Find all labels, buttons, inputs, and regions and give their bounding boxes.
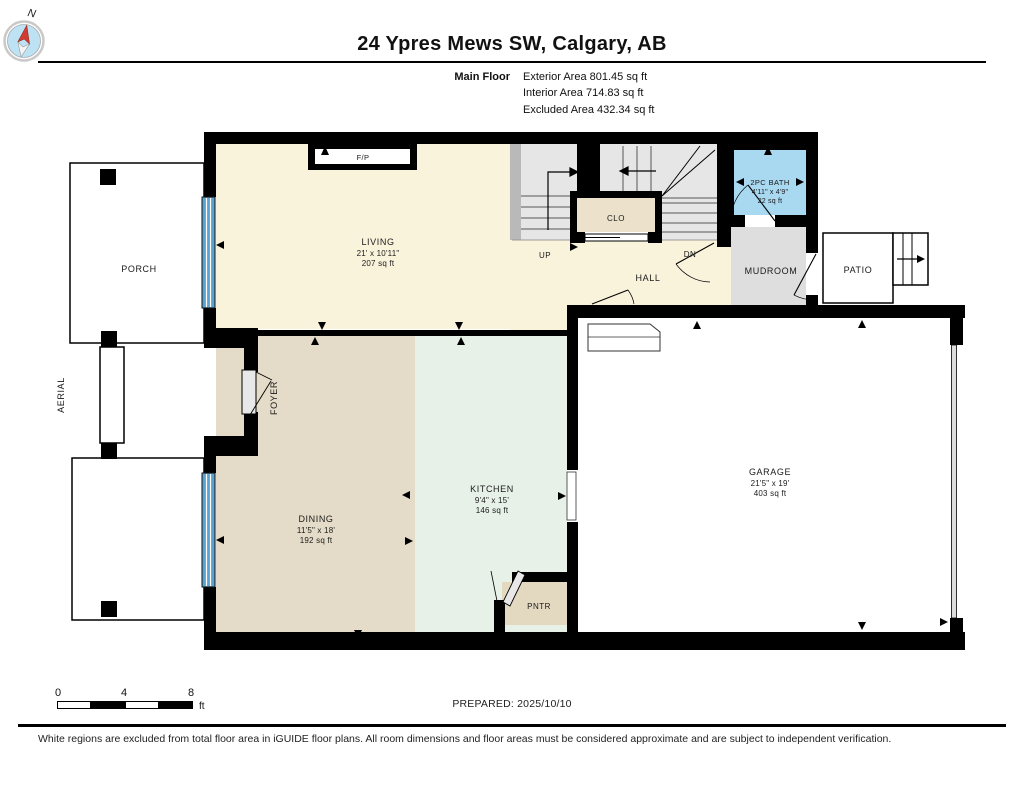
bath-label: 2PC BATH	[750, 178, 789, 187]
prepared-date: PREPARED: 2025/10/10	[0, 698, 1024, 710]
bath-sqft: 22 sq ft	[758, 198, 783, 205]
wall-segment	[950, 618, 963, 650]
garage-shelf	[588, 324, 660, 351]
stairs-up-label: UP	[539, 251, 551, 260]
dining-dims: 11'5" x 18'	[297, 526, 335, 535]
stairs-down-upper-area	[600, 144, 717, 198]
wall-segment	[570, 232, 585, 243]
pantry-label: PNTR	[527, 602, 551, 611]
patio-outline	[823, 233, 928, 303]
wall-segment	[722, 215, 745, 227]
wall-segment	[204, 132, 731, 144]
wall-segment	[494, 600, 505, 632]
bath-dims: 4'11" x 4'9"	[752, 189, 789, 196]
patio-label: PATIO	[844, 265, 873, 275]
wall-segment	[577, 144, 600, 198]
stairs-down-lower-area	[662, 198, 717, 240]
wall-segment	[204, 328, 258, 348]
fireplace-label: F/P	[357, 153, 370, 162]
dining-sqft: 192 sq ft	[300, 536, 333, 545]
dining-label: DINING	[298, 514, 333, 524]
dining-window	[202, 473, 215, 587]
floorplan-page: 24 Ypres Mews SW, Calgary, AB Main Floor…	[0, 0, 1024, 791]
kitchen-label: KITCHEN	[470, 484, 514, 494]
wall-segment	[567, 305, 578, 470]
disclaimer-text: White regions are excluded from total fl…	[38, 733, 1006, 745]
living-dims: 21' x 10'11"	[357, 249, 400, 258]
floor-plan: LIVING 21' x 10'11" 207 sq ft DINING 11'…	[0, 0, 1024, 660]
wall-segment	[204, 330, 578, 336]
aerial-box	[100, 347, 124, 443]
wall-segment	[204, 456, 216, 473]
wall-segment	[570, 191, 662, 198]
wall-segment	[578, 305, 965, 318]
wall-segment	[648, 232, 662, 243]
porch-posts	[100, 169, 117, 617]
living-window	[202, 197, 215, 308]
kitchen-wall-notch	[567, 472, 576, 520]
porch-outline	[70, 163, 204, 620]
wall-segment	[204, 632, 965, 650]
living-sqft: 207 sq ft	[362, 259, 395, 268]
wall-segment	[722, 132, 818, 150]
wall-segment	[775, 215, 818, 227]
hall-label: HALL	[636, 273, 661, 283]
wall-segment	[244, 412, 258, 436]
windows	[202, 197, 215, 587]
front-door	[242, 370, 256, 414]
upper-porch	[70, 163, 204, 343]
wall-segment	[204, 436, 258, 456]
room-fills	[216, 144, 950, 632]
mudroom-label: MUDROOM	[745, 266, 798, 276]
garage-door	[952, 345, 957, 618]
garage-label: GARAGE	[749, 467, 791, 477]
wall-segment	[204, 587, 216, 632]
stair-half-wall	[510, 144, 521, 240]
garage-dims: 21'5" x 19'	[751, 479, 790, 488]
wall-segment	[244, 348, 258, 372]
closet-door	[585, 234, 648, 241]
foyer-label: FOYER	[269, 381, 279, 415]
kitchen-sqft: 146 sq ft	[476, 506, 509, 515]
footer-divider	[18, 724, 1006, 727]
wall-segment	[806, 132, 818, 253]
garage-sqft: 403 sq ft	[754, 489, 787, 498]
stairs-down-label: DN	[684, 250, 697, 259]
porch-label: PORCH	[121, 264, 157, 274]
lower-porch	[72, 458, 204, 620]
wall-segment	[950, 305, 963, 345]
closet-label: CLO	[607, 214, 625, 223]
kitchen-dims: 9'4" x 15'	[475, 496, 509, 505]
aerial-label: AERIAL	[56, 377, 66, 413]
stairs-up-area	[512, 144, 577, 240]
wall-segment	[204, 132, 216, 197]
living-label: LIVING	[361, 237, 394, 247]
